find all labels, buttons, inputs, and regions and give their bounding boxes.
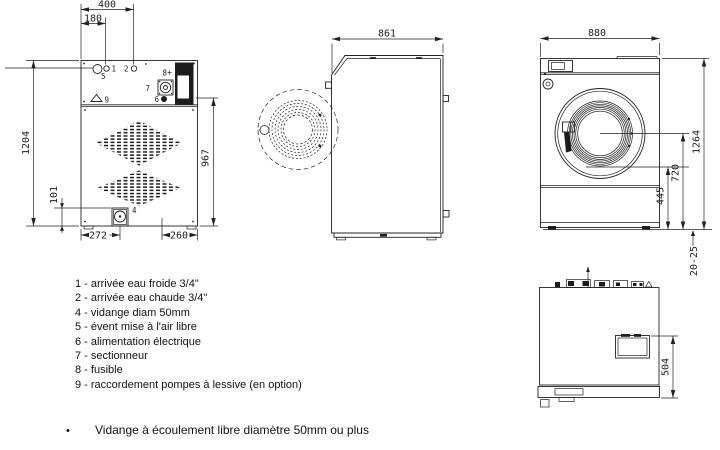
legend-item: 2 - arrivée eau chaude 3/4" — [75, 291, 302, 305]
callout-7: 7 — [145, 84, 150, 93]
side-view — [258, 56, 449, 240]
side-body-outline — [332, 56, 444, 234]
dim-front-width: 880 — [588, 28, 606, 39]
hot-water-inlet — [131, 66, 136, 71]
legend-item: 1 - arrivée eau froide 3/4" — [75, 277, 302, 291]
open-door — [258, 90, 338, 170]
door-handle-grip — [564, 132, 572, 153]
callout-6: 6 — [154, 95, 159, 104]
dim-drain-height: 101 — [49, 186, 60, 204]
front-body-outline — [541, 59, 660, 228]
callout-8: 8 — [163, 69, 168, 78]
dim-inlet-offset: 180 — [84, 14, 102, 25]
callout-9: 9 — [105, 96, 110, 105]
dim-cable-offset: 260 — [170, 231, 188, 242]
soap-dispenser — [616, 336, 650, 359]
dim-drain-offset: 272 — [89, 231, 107, 242]
dim-panel-depth: 504 — [661, 358, 672, 376]
rear-connectors — [555, 267, 652, 288]
top-view — [538, 267, 660, 408]
footnote: •Vidange à écoulement libre diamètre 50m… — [66, 423, 369, 437]
legend-item: 9 - raccordement pompes à lessive (en op… — [75, 378, 302, 392]
dim-back-width: 400 — [98, 0, 116, 11]
power-entry — [161, 96, 167, 102]
dim-door-bottom-height: 445 — [656, 187, 667, 205]
callout-2: 2 — [124, 65, 129, 74]
callout-1: 1 — [112, 65, 117, 74]
dim-door-center-height: 720 — [671, 164, 682, 182]
legend-item: 6 - alimentation électrique — [75, 335, 302, 349]
louver-pattern-upper — [96, 121, 182, 166]
side-hinge-tab — [326, 82, 332, 88]
stop-button — [543, 79, 553, 89]
front-view — [541, 57, 660, 230]
side-view-dimensions: 861 — [332, 29, 443, 74]
louver-pattern-lower — [97, 171, 181, 207]
dim-connection-height: 967 — [201, 149, 212, 167]
legend-item: 5 - évent mise à l'air libre — [75, 320, 302, 334]
fuse-mark — [168, 71, 172, 75]
back-view-dimensions: 400 180 1204 101 967 272 260 — [21, 0, 218, 242]
callout-4: 4 — [132, 206, 137, 215]
dim-depth: 861 — [378, 29, 396, 40]
front-foot-right — [642, 226, 650, 230]
callout-5: 5 — [101, 72, 106, 81]
dim-feet-adjust: 20-25 — [689, 246, 700, 276]
dim-total-height: 1264 — [692, 130, 703, 154]
back-view: 5 1 2 8 7 6 9 4 — [5, 61, 198, 241]
cold-water-inlet — [104, 66, 109, 71]
legend-item: 4 - vidange diam 50mm — [75, 306, 302, 320]
door-handle-edge — [260, 126, 269, 135]
top-front-strip — [538, 387, 660, 398]
side-tab-lower — [443, 211, 449, 218]
top-body-outline — [540, 288, 660, 386]
footnote-text: Vidange à écoulement libre diamètre 50mm… — [95, 423, 369, 437]
dim-back-height: 1204 — [21, 131, 32, 155]
footnote-bullet: • — [66, 425, 95, 437]
legend-item: 7 - sectionneur — [75, 349, 302, 363]
legend: 1 - arrivée eau froide 3/4" 2 - arrivée … — [75, 277, 302, 392]
side-base — [334, 233, 441, 237]
top-view-dimensions: 504 — [651, 336, 678, 398]
technical-drawing-page: 5 1 2 8 7 6 9 4 — [0, 0, 720, 450]
legend-item: 8 - fusible — [75, 363, 302, 377]
front-foot-left — [548, 226, 556, 230]
soap-pump-symbol — [91, 95, 102, 102]
side-tab-upper — [443, 96, 449, 102]
